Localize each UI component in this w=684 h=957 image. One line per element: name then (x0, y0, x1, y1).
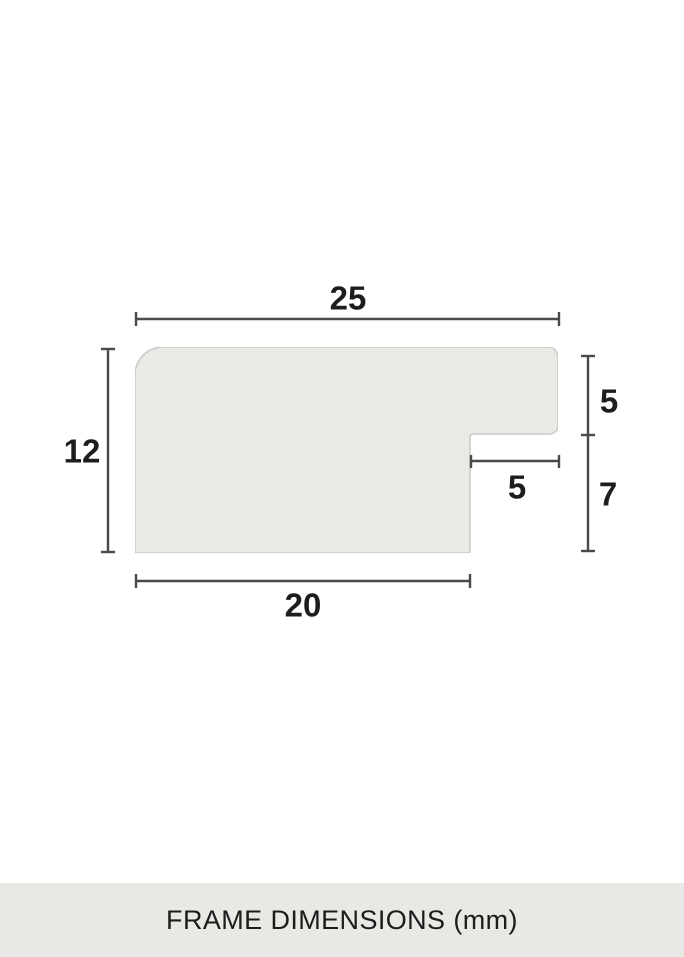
rabbet-width-dimension-line (471, 455, 559, 468)
right-split-dimension-line (581, 356, 595, 551)
caption-band: FRAME DIMENSIONS (mm) (0, 883, 684, 957)
dimension-lines-overlay (0, 0, 684, 883)
dimension-label-right-upper-height: 5 (600, 385, 618, 418)
frame-dimensions-page: 25 12 5 7 5 20 FRAME DIMENSIONS (mm) (0, 0, 684, 957)
dimension-label-left-height: 12 (64, 435, 101, 468)
left-height-dimension-line (101, 349, 115, 552)
dimension-label-bottom-width: 20 (285, 589, 322, 622)
caption-text: FRAME DIMENSIONS (mm) (166, 905, 518, 936)
dimension-label-rabbet-width: 5 (508, 471, 526, 504)
dimension-label-top-width: 25 (330, 282, 367, 315)
profile-diagram: 25 12 5 7 5 20 (0, 0, 684, 883)
dimension-label-right-lower-height: 7 (599, 478, 617, 511)
